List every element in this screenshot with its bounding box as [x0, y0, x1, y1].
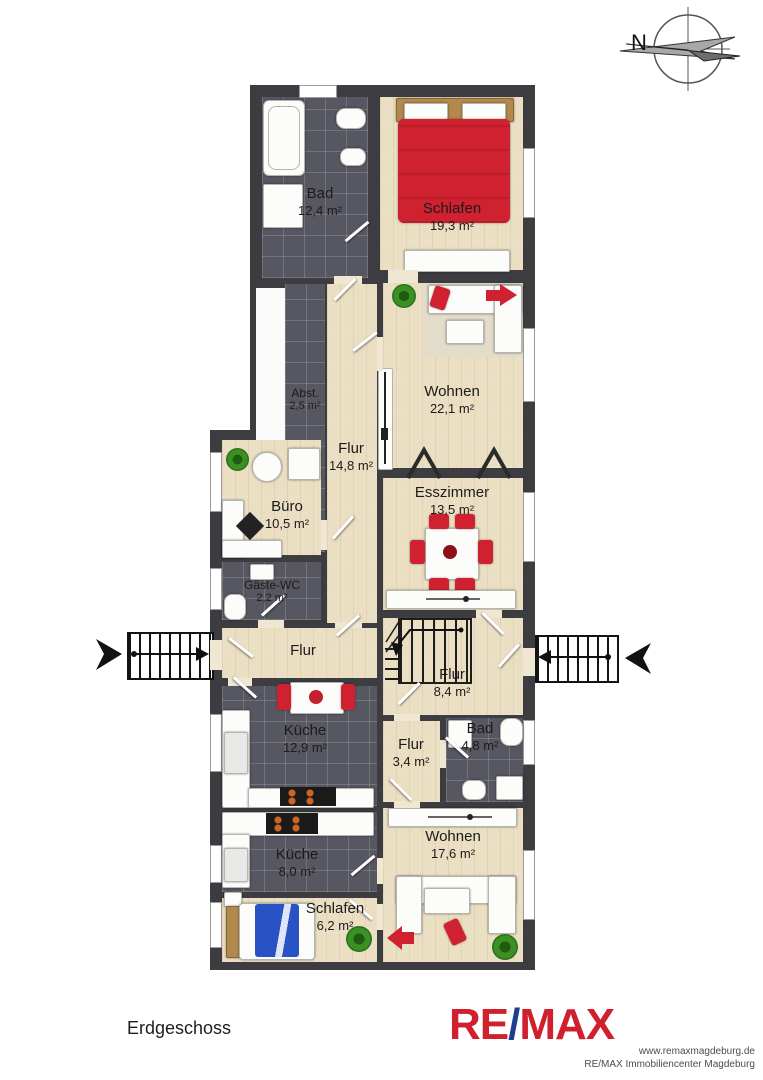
sink [496, 776, 523, 800]
window [299, 85, 337, 98]
room-label-gaeste-wc: Gäste-WC 2,2 m² [217, 578, 327, 605]
door-gap [210, 640, 222, 670]
side-table [252, 452, 282, 482]
website-url: www.remaxmagdeburg.de [639, 1046, 755, 1057]
room-label-kueche-129: Küche 12,9 m² [255, 722, 355, 755]
coffee-table [446, 320, 484, 344]
sideboard [388, 808, 517, 827]
room-label-schlafen-62: Schlafen 6,2 m² [285, 900, 385, 933]
logo-re: RE [449, 1000, 508, 1049]
window [523, 850, 535, 920]
remax-logo: RE/MAX [449, 1000, 614, 1050]
plant [226, 448, 249, 471]
room-label-flur-34: Flur 3,4 m² [380, 736, 442, 769]
chair [478, 540, 493, 564]
floorplan-page: Bad 12,4 m² Schlafen 19,3 m² Abst. 2,5 m… [0, 0, 763, 1080]
company-name: RE/MAX Immobiliencenter Magdeburg [584, 1059, 755, 1070]
staircase-winder [385, 640, 400, 680]
chair [341, 684, 355, 710]
bathtub-inner [268, 106, 300, 170]
floor-title: Erdgeschoss [127, 1018, 231, 1039]
toilet [336, 108, 366, 129]
window [210, 714, 222, 772]
kitchen-table [290, 682, 344, 714]
logo-slash: / [508, 1000, 519, 1049]
room-label-wohnen-176: Wohnen 17,6 m² [403, 828, 503, 861]
door-gap [377, 858, 383, 884]
chair [277, 684, 291, 710]
room-label-kueche-80: Küche 8,0 m² [247, 846, 347, 879]
room-label-esszimmer: Esszimmer 13,5 m² [392, 484, 512, 517]
room-label-flur-148: Flur 14,8 m² [310, 440, 392, 473]
room-label-wohnen-221: Wohnen 22,1 m² [402, 383, 502, 416]
kitchen-sink [224, 732, 248, 774]
door-gap [394, 714, 420, 721]
plant [392, 284, 416, 308]
coffee-table [424, 888, 470, 914]
sofa [494, 285, 522, 353]
sofa [396, 876, 422, 934]
pillow [462, 103, 506, 120]
entrance-stairs-left [127, 632, 214, 680]
door-gap [377, 337, 383, 371]
door-gap [388, 270, 418, 283]
window [210, 902, 222, 948]
entrance-stairs-right [535, 635, 619, 683]
stove [266, 813, 318, 834]
pillow [404, 103, 448, 120]
room-label-bad-48: Bad 4,8 m² [440, 720, 520, 753]
sideboard [386, 590, 516, 609]
bidet [462, 780, 486, 800]
dining-table [425, 528, 479, 580]
window [210, 452, 222, 512]
room-label-flur-84: Flur 8,4 m² [412, 666, 492, 699]
door-gap [523, 648, 535, 676]
room-label-bad-upper: Bad 12,4 m² [270, 185, 370, 218]
armchair [488, 876, 516, 934]
door-gap [394, 801, 420, 808]
radiator-knob [381, 428, 388, 440]
bidet [340, 148, 366, 166]
window [210, 845, 222, 883]
stove [280, 787, 336, 806]
window [523, 148, 535, 218]
desk [222, 540, 282, 558]
wall-stub [442, 468, 476, 478]
room-label-schlafen-upper: Schlafen 19,3 m² [402, 200, 502, 233]
kitchen-sink [224, 848, 248, 882]
compass-north-label: N [631, 30, 647, 56]
chair [410, 540, 425, 564]
room-label-flur-entry: Flur [265, 642, 341, 660]
logo-max: MAX [519, 1000, 614, 1049]
room-label-abstellraum: Abst. 2,5 m² [283, 386, 327, 413]
bed-bench [404, 250, 510, 272]
window [523, 492, 535, 562]
plant [492, 934, 518, 960]
window [523, 328, 535, 402]
window [523, 720, 535, 765]
room-label-buero: Büro 10,5 m² [237, 498, 337, 531]
door-gap [258, 620, 284, 628]
wall-stub [510, 468, 523, 478]
